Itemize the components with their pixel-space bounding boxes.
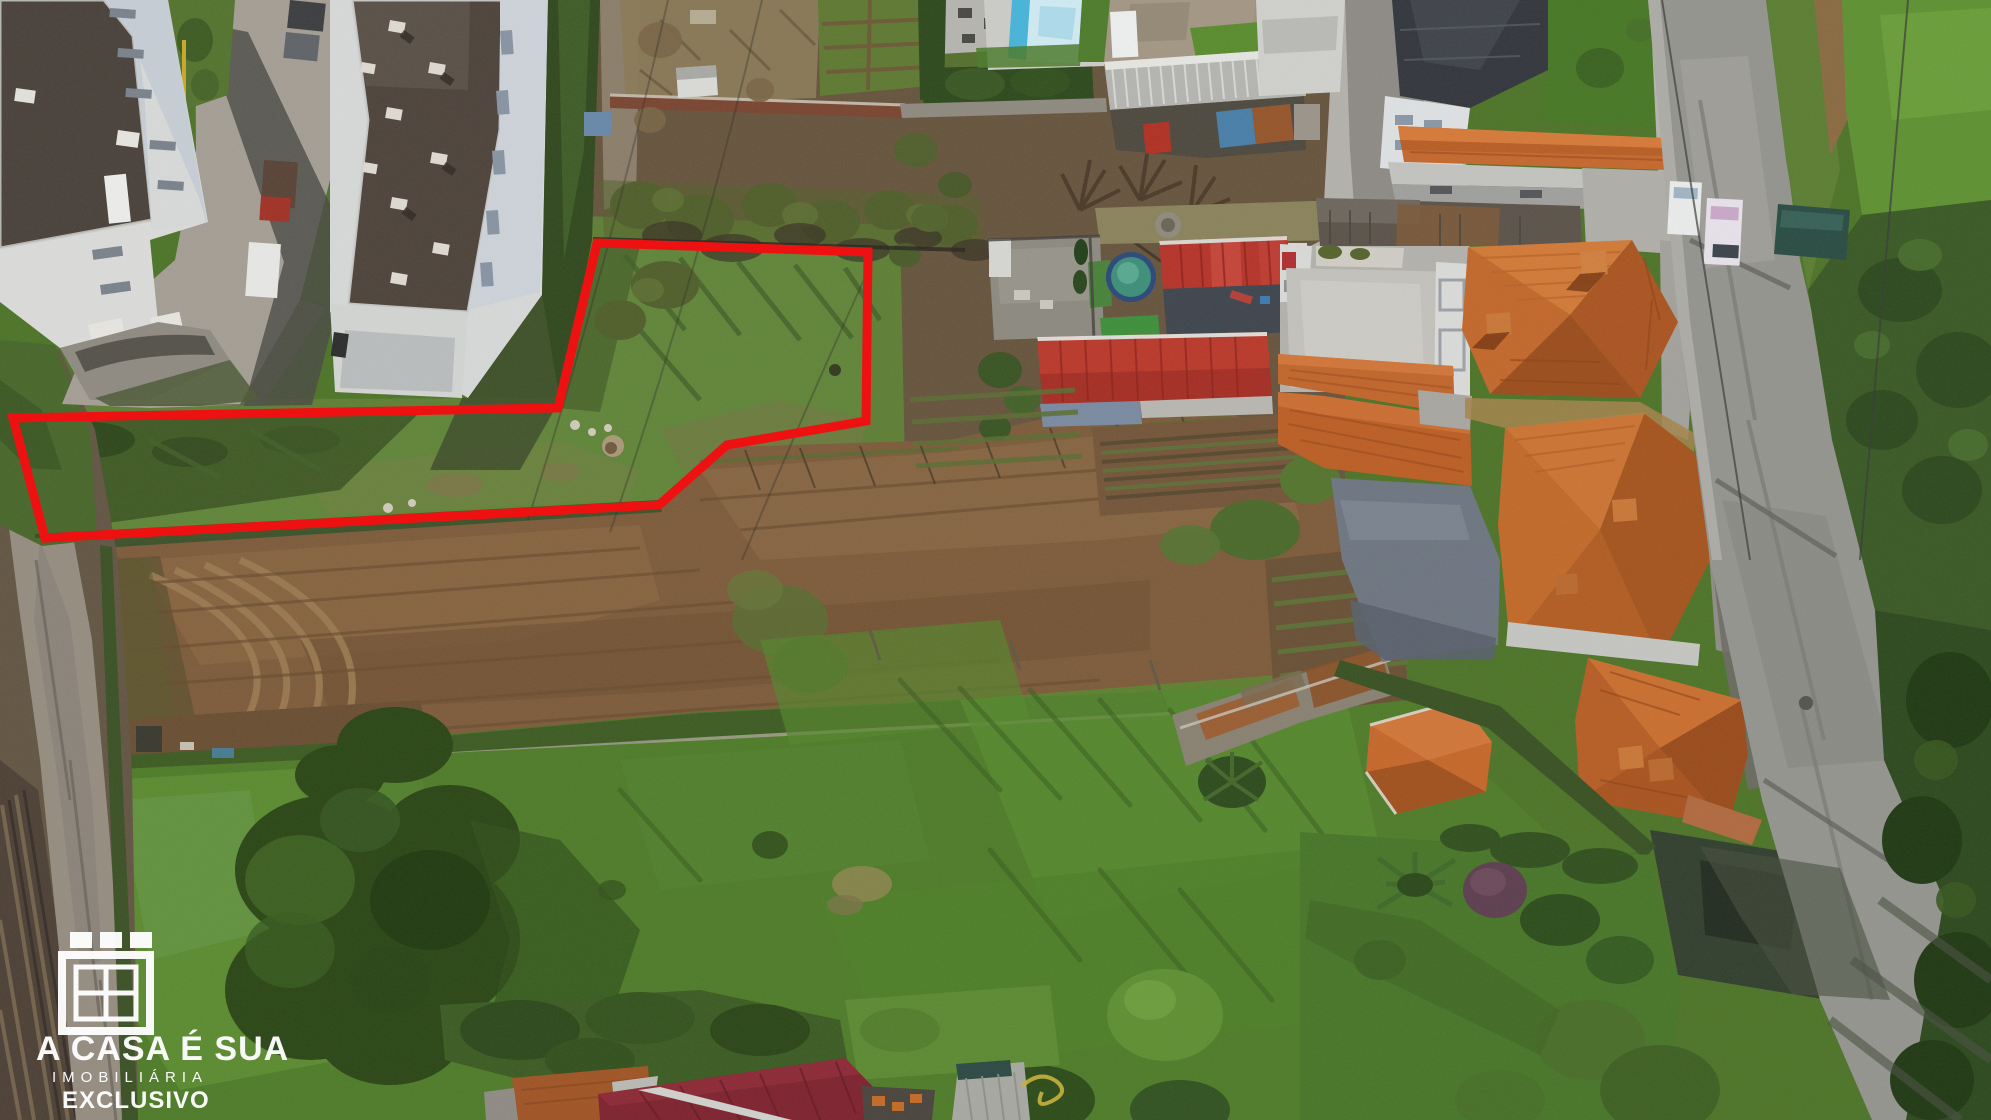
svg-text:EXCLUSIVO: EXCLUSIVO	[62, 1087, 210, 1114]
svg-text:IMOBILIÁRIA: IMOBILIÁRIA	[52, 1069, 208, 1086]
svg-text:A CASA É SUA: A CASA É SUA	[36, 1030, 289, 1068]
